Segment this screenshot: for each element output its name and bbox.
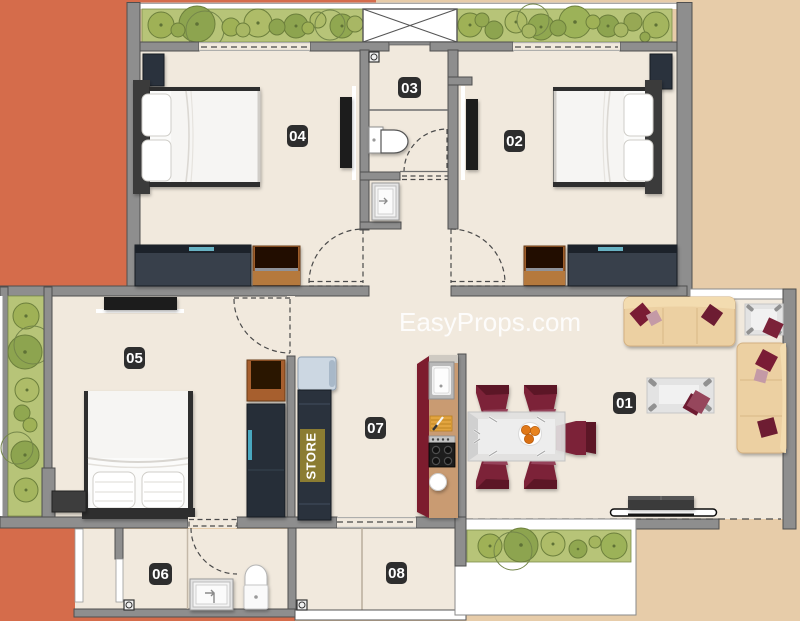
- svg-text:STORE: STORE: [303, 432, 318, 479]
- svg-text:06: 06: [152, 566, 169, 583]
- svg-text:04: 04: [289, 128, 306, 145]
- svg-text:01: 01: [616, 395, 633, 412]
- svg-text:05: 05: [126, 350, 143, 367]
- svg-text:02: 02: [506, 133, 523, 150]
- svg-text:07: 07: [367, 420, 384, 437]
- svg-text:03: 03: [401, 80, 418, 97]
- svg-text:EasyProps.com: EasyProps.com: [399, 307, 581, 337]
- svg-text:08: 08: [388, 565, 405, 582]
